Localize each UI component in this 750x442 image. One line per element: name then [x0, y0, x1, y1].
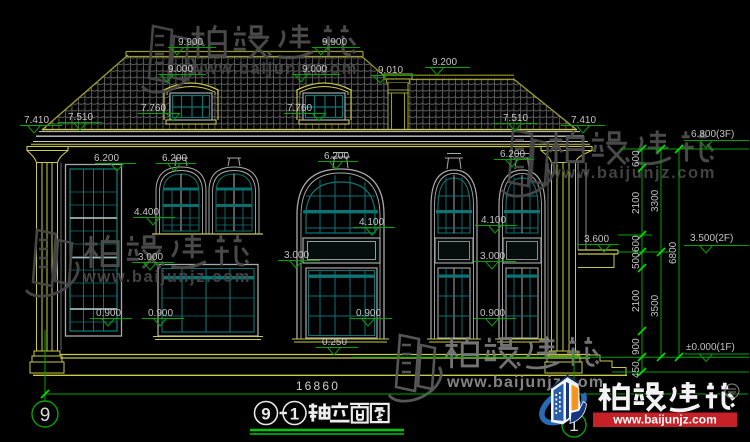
svg-text:7.410: 7.410 — [24, 115, 49, 126]
svg-text:6.200: 6.200 — [500, 149, 525, 160]
svg-text:9: 9 — [261, 405, 270, 424]
svg-text:6800: 6800 — [668, 241, 679, 264]
svg-text:900: 900 — [631, 338, 642, 355]
svg-text:7.760: 7.760 — [287, 103, 312, 114]
svg-text:16860: 16860 — [296, 379, 340, 393]
svg-text:6.200: 6.200 — [94, 153, 119, 164]
svg-text:600: 600 — [631, 150, 642, 167]
svg-text:7.760: 7.760 — [141, 103, 166, 114]
svg-text:9.900: 9.900 — [178, 37, 203, 48]
svg-text:0.900: 0.900 — [356, 308, 381, 319]
svg-text:600: 600 — [631, 235, 642, 252]
svg-text:3.000: 3.000 — [480, 251, 505, 262]
svg-text:3.000: 3.000 — [138, 252, 163, 263]
svg-text:4.100: 4.100 — [359, 217, 384, 228]
svg-text:9.900: 9.900 — [322, 37, 347, 48]
svg-text:450: 450 — [631, 361, 642, 378]
svg-text:3.500(2F): 3.500(2F) — [690, 233, 733, 244]
svg-text:500: 500 — [631, 252, 642, 269]
svg-text:www.baijunjz.com: www.baijunjz.com — [82, 268, 251, 286]
svg-text:9: 9 — [40, 405, 51, 426]
svg-text:2100: 2100 — [631, 191, 642, 214]
svg-text:3.600: 3.600 — [584, 234, 609, 245]
svg-text:3.000: 3.000 — [284, 250, 309, 261]
svg-text:7.410: 7.410 — [571, 115, 596, 126]
svg-text:7.510: 7.510 — [503, 113, 528, 124]
svg-text:0.900: 0.900 — [480, 308, 505, 319]
svg-text:www.baijunjz.com: www.baijunjz.com — [189, 60, 358, 78]
svg-text:±0.000(1F): ±0.000(1F) — [686, 342, 735, 353]
svg-text:4.100: 4.100 — [481, 215, 506, 226]
svg-text:9.000: 9.000 — [168, 64, 193, 75]
svg-text:7.510: 7.510 — [68, 112, 93, 123]
svg-text:1: 1 — [290, 405, 299, 424]
svg-text:6.200: 6.200 — [324, 151, 349, 162]
svg-text:0.250: 0.250 — [322, 337, 347, 348]
svg-text:www.baijunjz.com: www.baijunjz.com — [446, 374, 604, 391]
svg-text:6.200: 6.200 — [162, 153, 187, 164]
svg-text:6.800(3F): 6.800(3F) — [691, 129, 734, 140]
svg-text:4.400: 4.400 — [134, 207, 159, 218]
svg-text:9.200: 9.200 — [432, 57, 457, 68]
svg-text:9.000: 9.000 — [302, 64, 327, 75]
svg-text:2100: 2100 — [631, 289, 642, 312]
svg-text:3300: 3300 — [650, 189, 661, 212]
svg-text:3500: 3500 — [650, 294, 661, 317]
svg-text:0.900: 0.900 — [96, 308, 121, 319]
svg-text:9.010: 9.010 — [378, 65, 403, 76]
svg-text:0.900: 0.900 — [148, 308, 173, 319]
svg-text:www.baijunjz.com: www.baijunjz.com — [612, 413, 717, 427]
